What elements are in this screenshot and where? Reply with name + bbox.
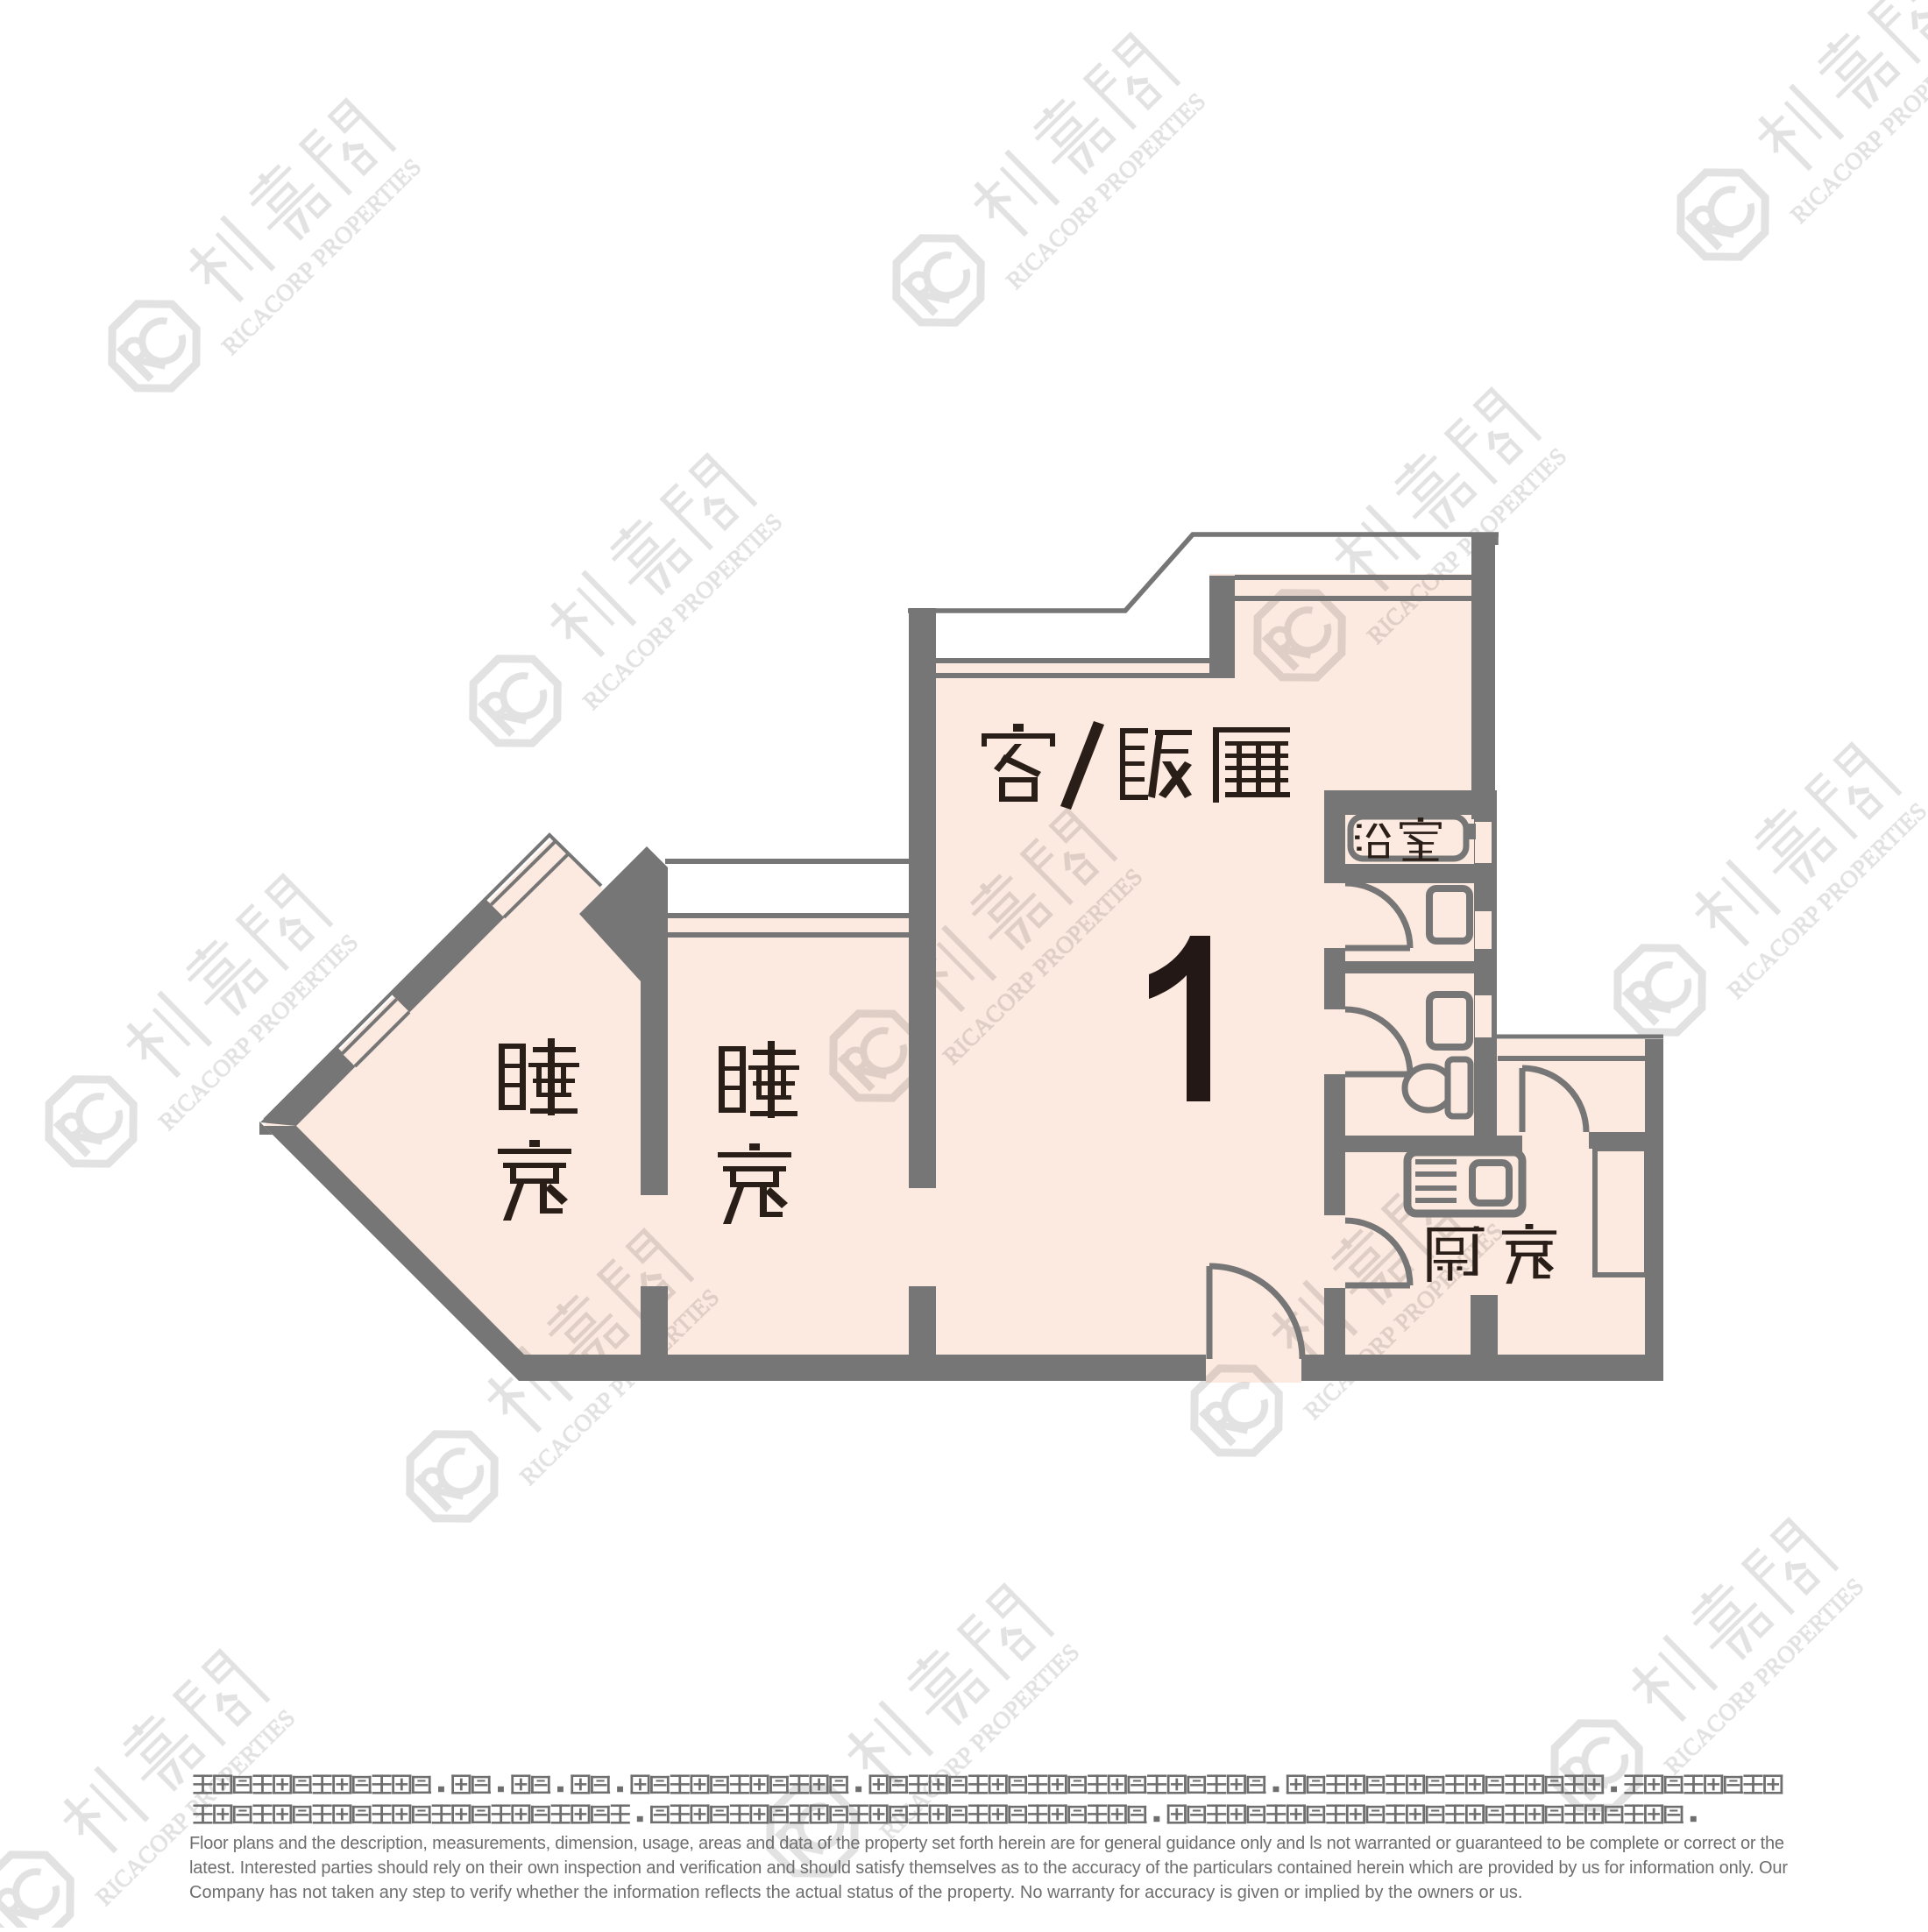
svg-text:latest. Interested parties sho: latest. Interested parties should rely o… [189, 1858, 1788, 1878]
svg-text:Floor plans and the descriptio: Floor plans and the description, measure… [189, 1834, 1784, 1853]
svg-text:Company has not taken any step: Company has not taken any step to verify… [189, 1883, 1522, 1902]
